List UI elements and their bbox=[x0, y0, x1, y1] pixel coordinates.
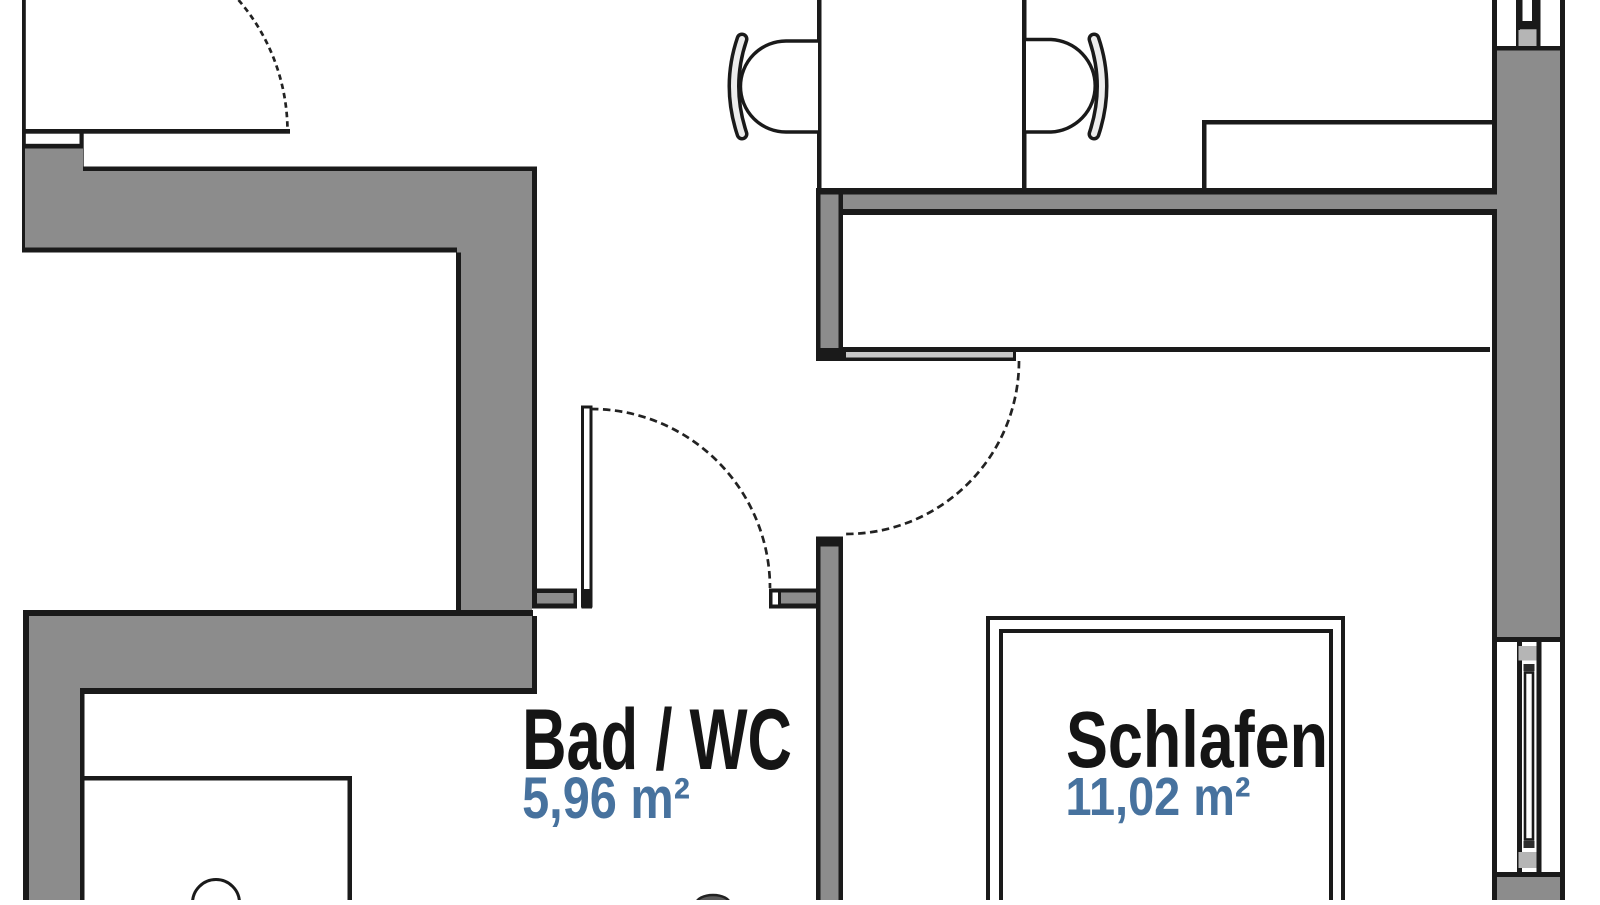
svg-text:11,02 m²: 11,02 m² bbox=[1066, 766, 1251, 827]
svg-text:5,96 m²: 5,96 m² bbox=[522, 767, 690, 831]
